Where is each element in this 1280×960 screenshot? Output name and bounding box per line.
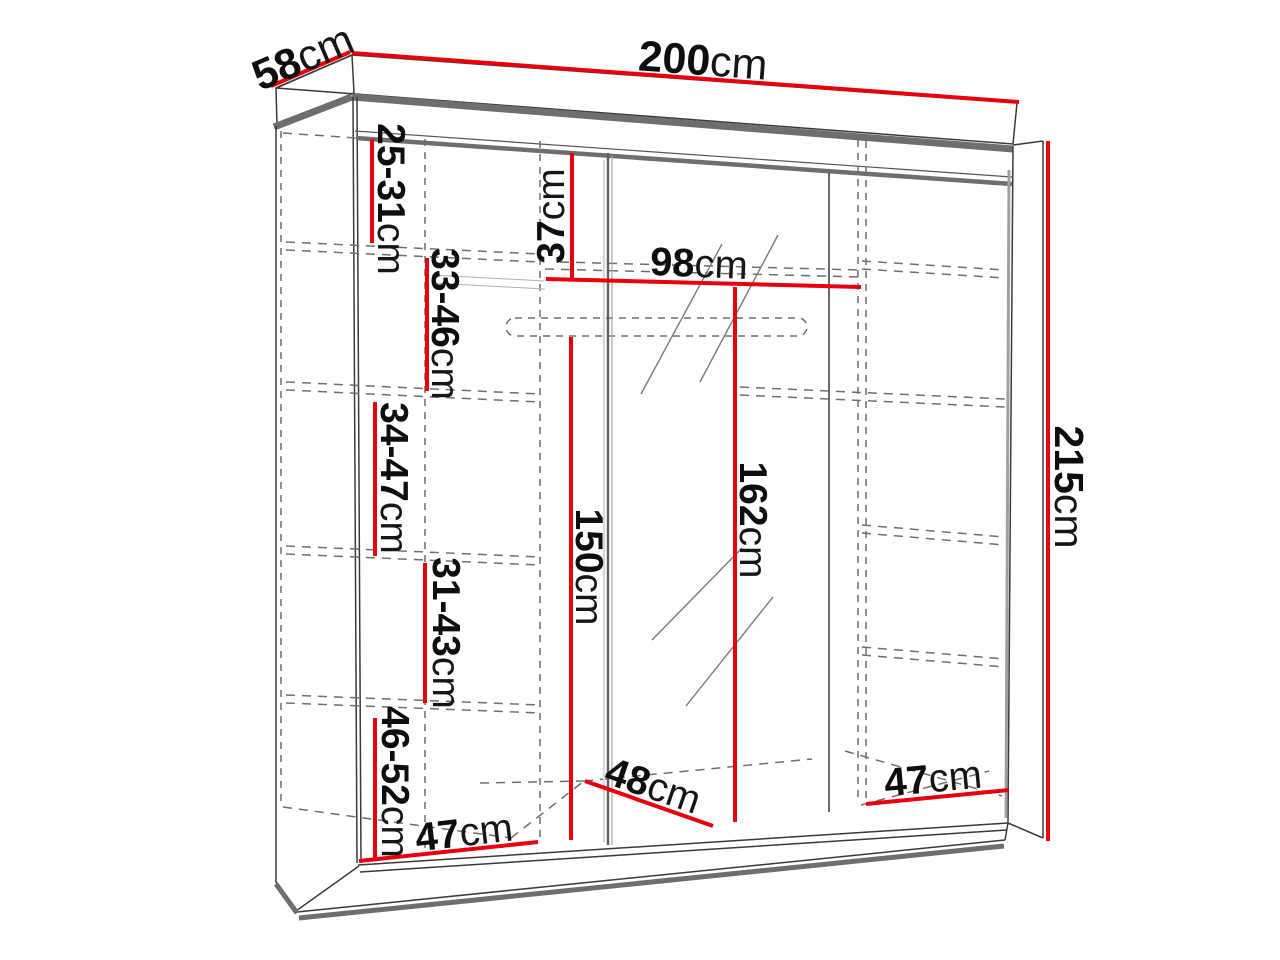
top-panel-left-shadow — [274, 97, 352, 127]
dim-label-98cm: 98cm — [649, 240, 749, 288]
dim-label-47cm-left: 47cm — [413, 806, 515, 861]
interior-top-rail — [356, 138, 1012, 184]
dim-label-46-52cm: 46-52cm — [374, 706, 417, 858]
dim-label-215cm: 215cm — [1046, 425, 1092, 548]
left-side-panel-outline — [276, 126, 359, 911]
dim-label-150cm: 150cm — [568, 508, 611, 625]
dim-label-58cm: 58cm — [245, 15, 361, 100]
dim-label-25-31cm: 25-31cm — [370, 123, 413, 275]
right-side-panel — [1008, 141, 1043, 838]
dim-label-200cm: 200cm — [637, 32, 769, 89]
dim-label-34-47cm: 34-47cm — [373, 402, 416, 554]
dim-label-48cm: 48cm — [600, 749, 707, 822]
dim-label-162cm: 162cm — [732, 461, 775, 578]
dim-label-33-46cm: 33-46cm — [424, 248, 467, 400]
top-panel-front-shadow — [352, 97, 1013, 149]
wardrobe-dimension-diagram: 58cm 200cm 215cm 25-31cm 37cm 98cm 33-46… — [0, 0, 1280, 960]
left-front-edge — [353, 97, 361, 863]
right-section-shelves — [740, 261, 1005, 667]
dim-label-37cm: 37cm — [530, 168, 573, 263]
clothes-rail — [506, 318, 807, 336]
dim-label-31-43cm: 31-43cm — [425, 557, 468, 709]
dim-label-47cm-right: 47cm — [882, 753, 983, 806]
